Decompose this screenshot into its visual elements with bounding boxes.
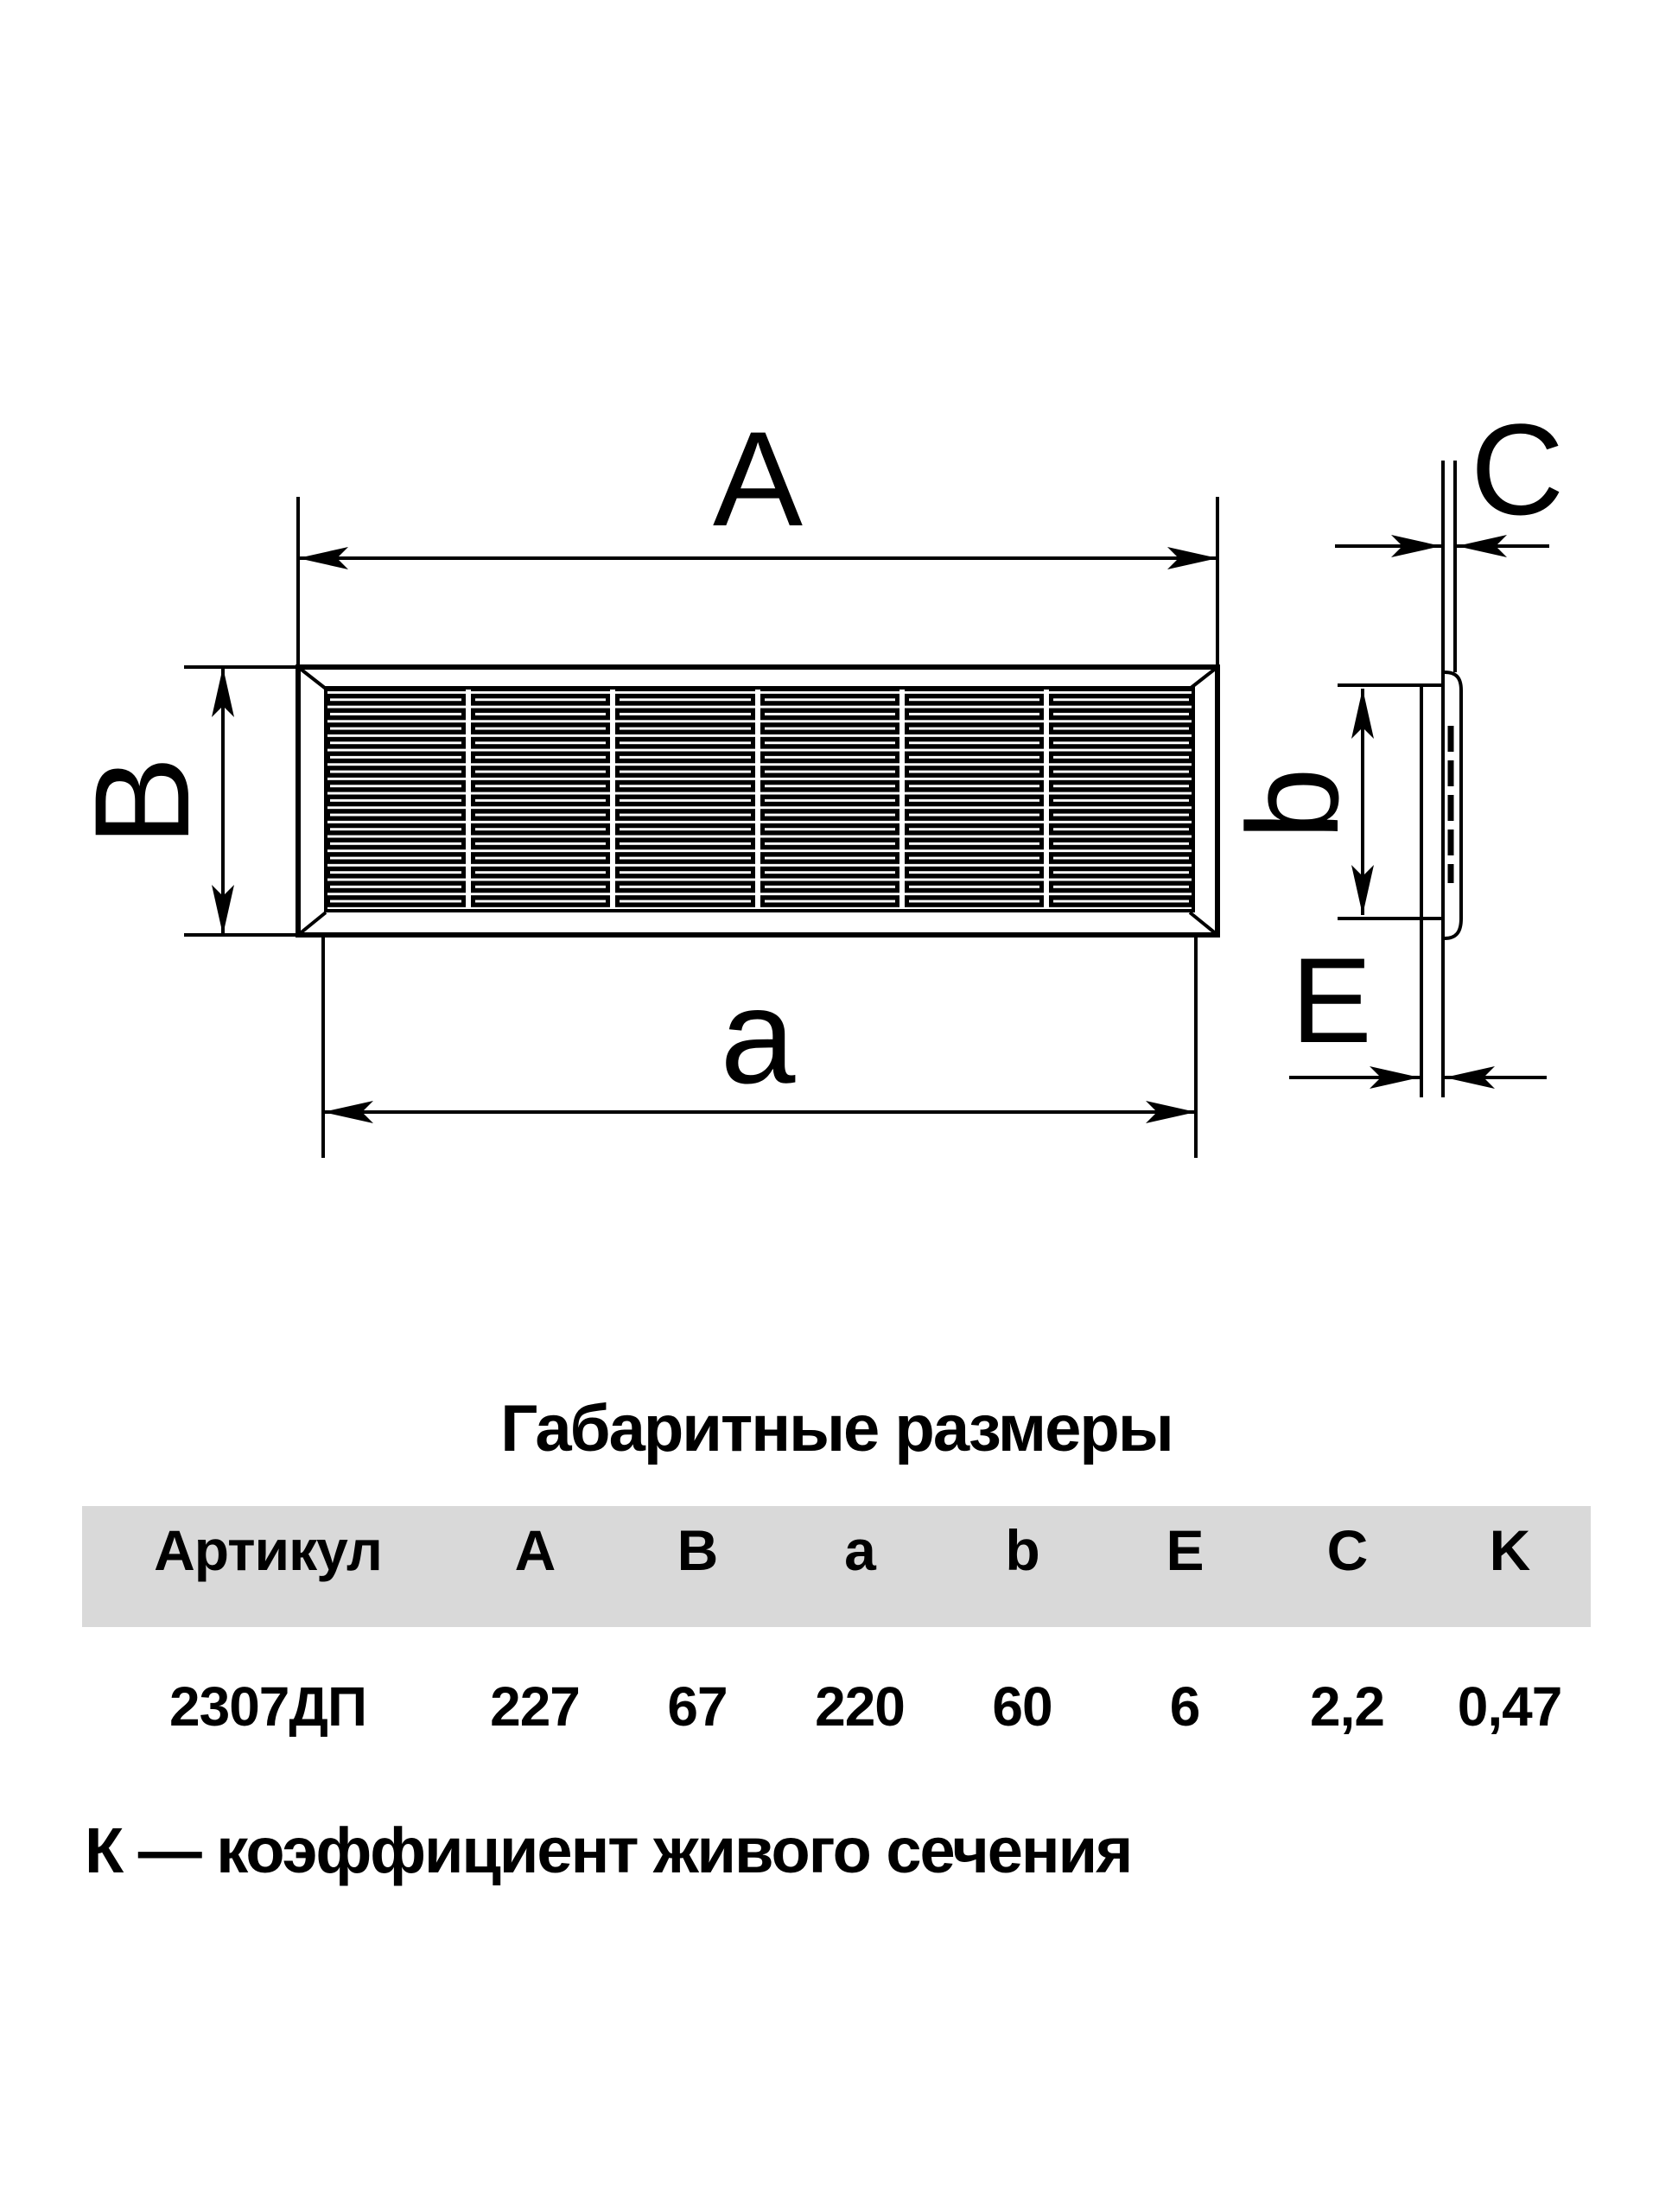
table-cell-B: 67 (616, 1675, 779, 1738)
technical-drawing: A (0, 0, 1659, 1253)
table-header-cell-C: C (1266, 1518, 1428, 1582)
grille-profile (1421, 461, 1461, 1097)
table-cell-article: 2307ДП (82, 1675, 454, 1738)
table-cell-A: 227 (454, 1675, 616, 1738)
page: A (0, 0, 1659, 2212)
dimension-E: E (1289, 932, 1547, 1077)
louver-column-separator (755, 688, 760, 911)
louver-column-separator (466, 688, 471, 911)
grille-front (298, 667, 1217, 935)
table-cell-E: 6 (1103, 1675, 1266, 1738)
table-header-cell-article: Артикул (82, 1518, 454, 1582)
footnote: К — коэффициент живого сечения (85, 1815, 1131, 1887)
table-header-cell-E: E (1103, 1518, 1266, 1582)
dimension-C: C (1335, 397, 1564, 546)
dim-label-E: E (1291, 932, 1371, 1068)
dim-label-b: b (1220, 767, 1365, 839)
table-cell-b: 60 (941, 1675, 1103, 1738)
dim-label-B: B (67, 756, 218, 846)
louver-column-separator (1044, 688, 1049, 911)
front-view: A (67, 404, 1217, 1158)
louver-column-separator (899, 688, 905, 911)
table-cell-K: 0,47 (1428, 1675, 1591, 1738)
table-header-cell-b: b (941, 1518, 1103, 1582)
table-row: 2307ДП 227 67 220 60 6 2,2 0,47 (82, 1675, 1591, 1738)
louver-grille (326, 688, 1193, 911)
dim-label-C: C (1471, 397, 1564, 542)
dimension-a: a (323, 935, 1196, 1158)
table-header-cell-A: A (454, 1518, 616, 1582)
table-header-cell-a: a (779, 1518, 941, 1582)
dimension-A: A (298, 404, 1217, 667)
dimension-b: b (1220, 685, 1443, 918)
table-title: Габаритные размеры (82, 1393, 1591, 1465)
side-view: C b E (1220, 397, 1564, 1097)
dim-label-a: a (721, 962, 796, 1112)
table-cell-C: 2,2 (1266, 1675, 1428, 1738)
louver-column-separator (610, 688, 615, 911)
dimension-B: B (67, 667, 302, 935)
table-header-cell-B: B (616, 1518, 779, 1582)
table-header-row: Артикул A B a b E C K (82, 1506, 1591, 1627)
table-header-cell-K: K (1428, 1518, 1591, 1582)
dim-label-A: A (713, 404, 803, 555)
table-cell-a: 220 (779, 1675, 941, 1738)
